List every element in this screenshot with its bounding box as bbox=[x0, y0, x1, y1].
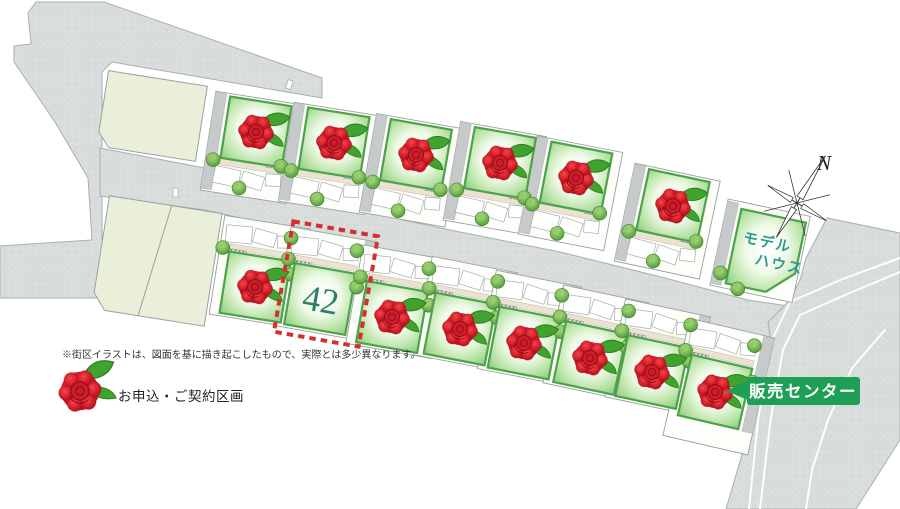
legend-label: お申込・ご契約区画 bbox=[118, 389, 244, 404]
site-plan-map: 42 モデル ハウス 販売センター N ※街区イラストは、図面を基に描き起こした… bbox=[0, 0, 900, 509]
lot-number: 42 bbox=[300, 277, 342, 323]
rose-icon bbox=[55, 359, 119, 413]
site-plan-page: 42 モデル ハウス 販売センター N ※街区イラストは、図面を基に描き起こした… bbox=[0, 0, 900, 509]
legend: お申込・ご契約区画 bbox=[55, 359, 244, 413]
house-lots bbox=[200, 91, 810, 455]
vacant-lot bbox=[92, 196, 222, 326]
north-label: N bbox=[816, 151, 832, 175]
disclaimer-text: ※街区イラストは、図面を基に描き起こしたもので、実際とは多少異なります。 bbox=[62, 348, 420, 361]
sales-center-tag-label: 販売センター bbox=[749, 381, 857, 401]
vacant-lot bbox=[97, 71, 208, 162]
curb-marker bbox=[173, 188, 178, 197]
